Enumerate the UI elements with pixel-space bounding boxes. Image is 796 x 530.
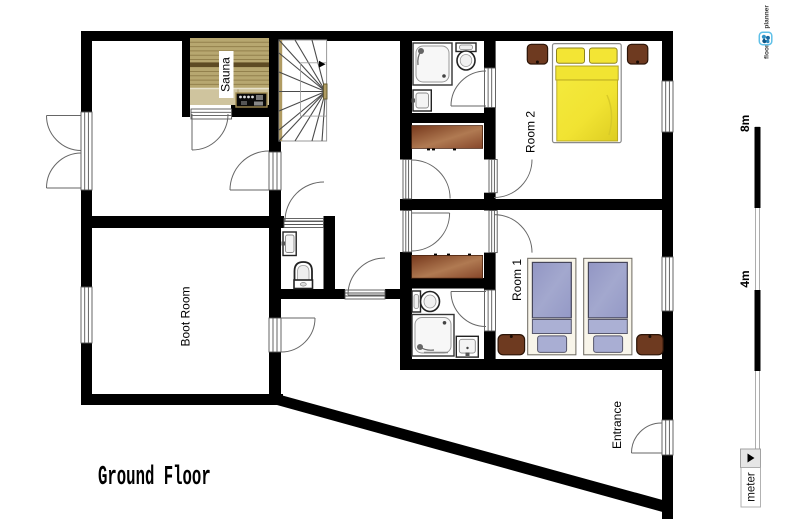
svg-text:4m: 4m (738, 270, 752, 287)
svg-text:Sauna: Sauna (219, 57, 233, 92)
svg-text:Ground Floor: Ground Floor (98, 462, 211, 493)
svg-text:floor: floor (764, 44, 771, 59)
svg-text:Room 1: Room 1 (510, 259, 524, 301)
svg-text:Entrance: Entrance (610, 401, 624, 449)
svg-text:meter: meter (746, 472, 758, 502)
svg-text:planner: planner (764, 5, 771, 29)
svg-text:Boot Room: Boot Room (179, 286, 193, 346)
svg-text:8m: 8m (738, 115, 752, 132)
svg-text:Room 2: Room 2 (524, 111, 538, 153)
